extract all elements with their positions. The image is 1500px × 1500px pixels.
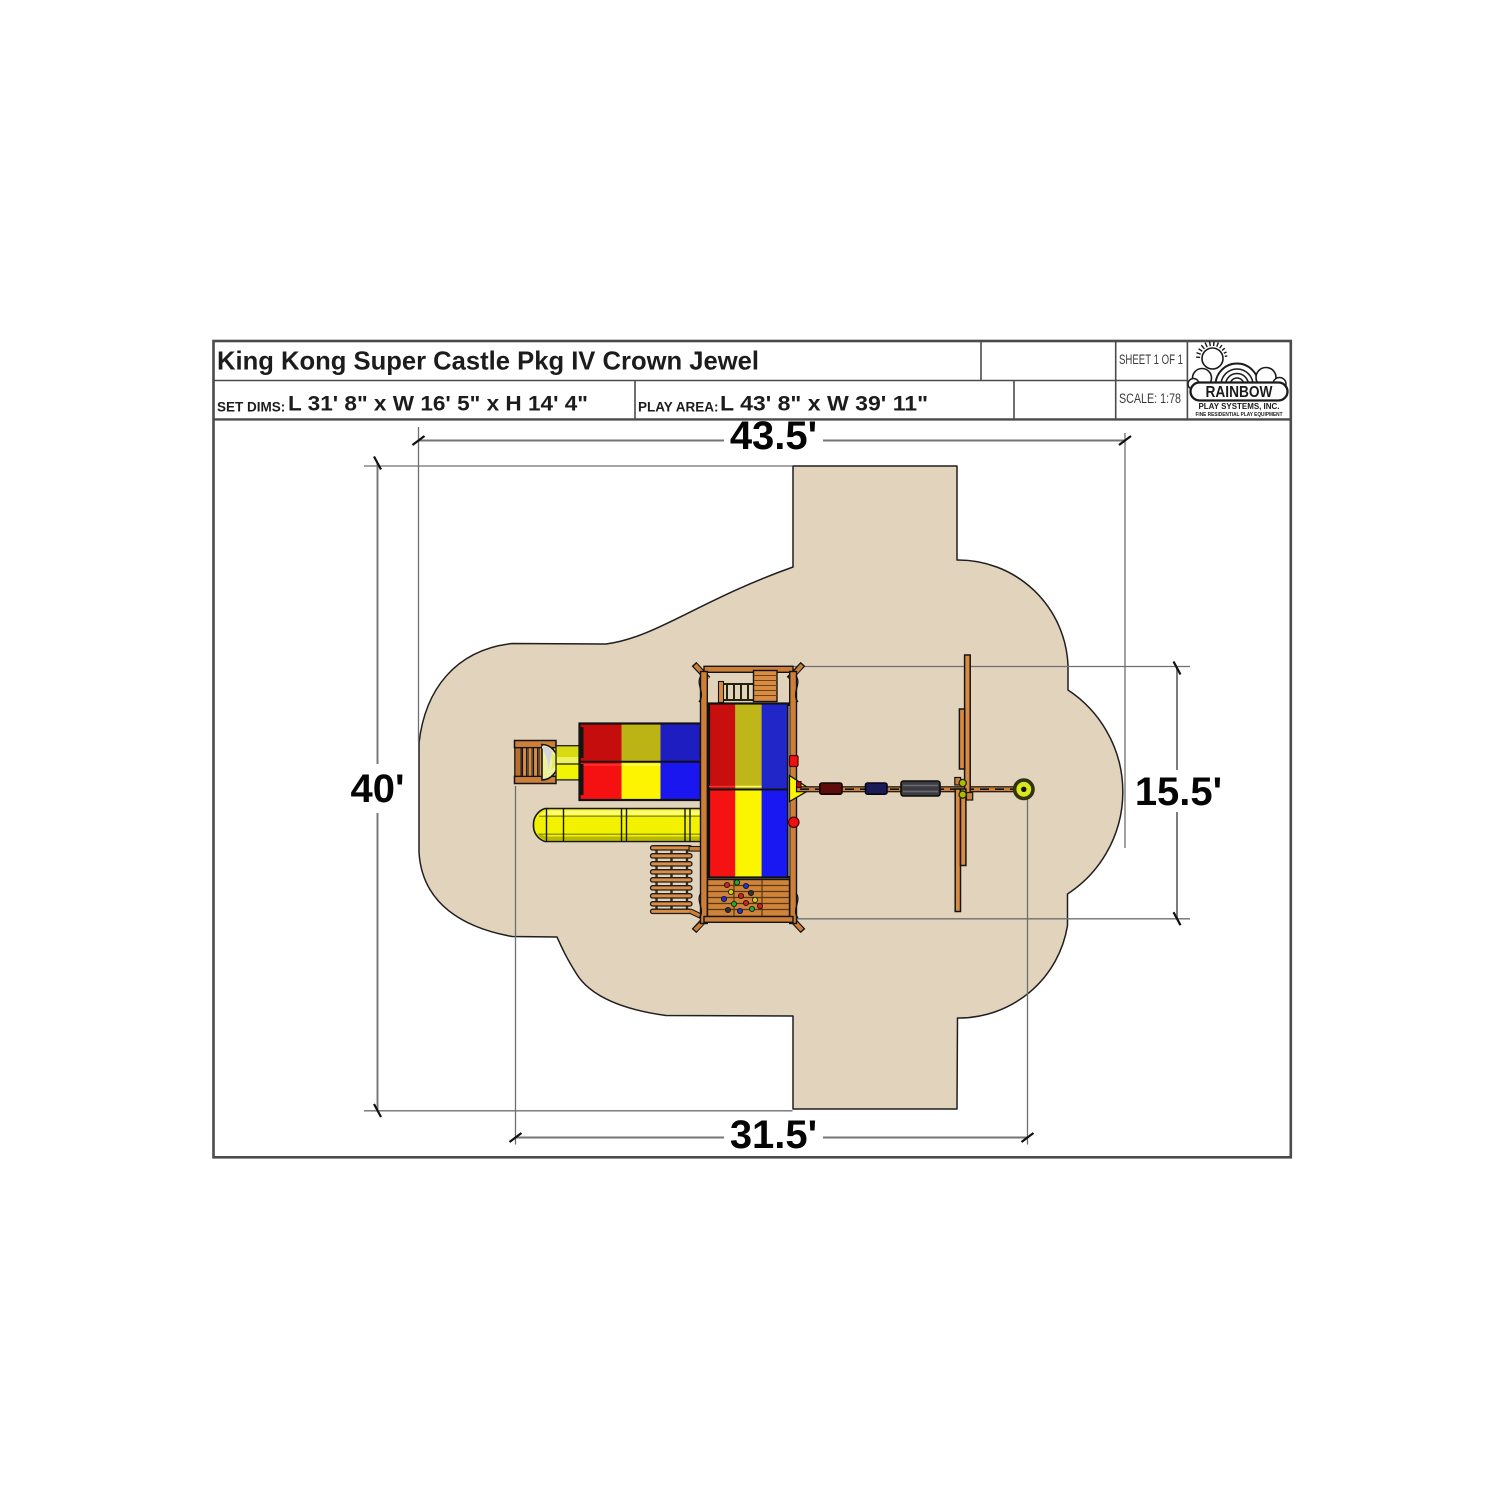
- svg-text:FINE RESIDENTIAL PLAY EQUIPMEN: FINE RESIDENTIAL PLAY EQUIPMENT: [1196, 412, 1283, 418]
- svg-text:SHEET 1 OF 1: SHEET 1 OF 1: [1119, 352, 1183, 367]
- svg-text:PLAY SYSTEMS, INC.: PLAY SYSTEMS, INC.: [1199, 401, 1280, 411]
- svg-text:15.5': 15.5': [1135, 770, 1222, 814]
- svg-text:43.5': 43.5': [730, 414, 817, 458]
- svg-text:RAINBOW: RAINBOW: [1206, 384, 1273, 401]
- svg-text:SET DIMS:: SET DIMS:: [217, 400, 285, 415]
- svg-text:PLAY AREA:: PLAY AREA:: [638, 400, 719, 415]
- svg-text:31.5': 31.5': [730, 1113, 817, 1157]
- svg-text:L 43' 8" x W 39' 11": L 43' 8" x W 39' 11": [720, 393, 928, 416]
- svg-text:SCALE: 1:78: SCALE: 1:78: [1119, 391, 1181, 406]
- svg-text:King Kong Super Castle Pkg IV: King Kong Super Castle Pkg IV Crown Jewe…: [217, 346, 759, 376]
- svg-text:40': 40': [350, 767, 404, 811]
- svg-text:L 31' 8" x W 16' 5" x H 14' 4": L 31' 8" x W 16' 5" x H 14' 4": [288, 393, 588, 416]
